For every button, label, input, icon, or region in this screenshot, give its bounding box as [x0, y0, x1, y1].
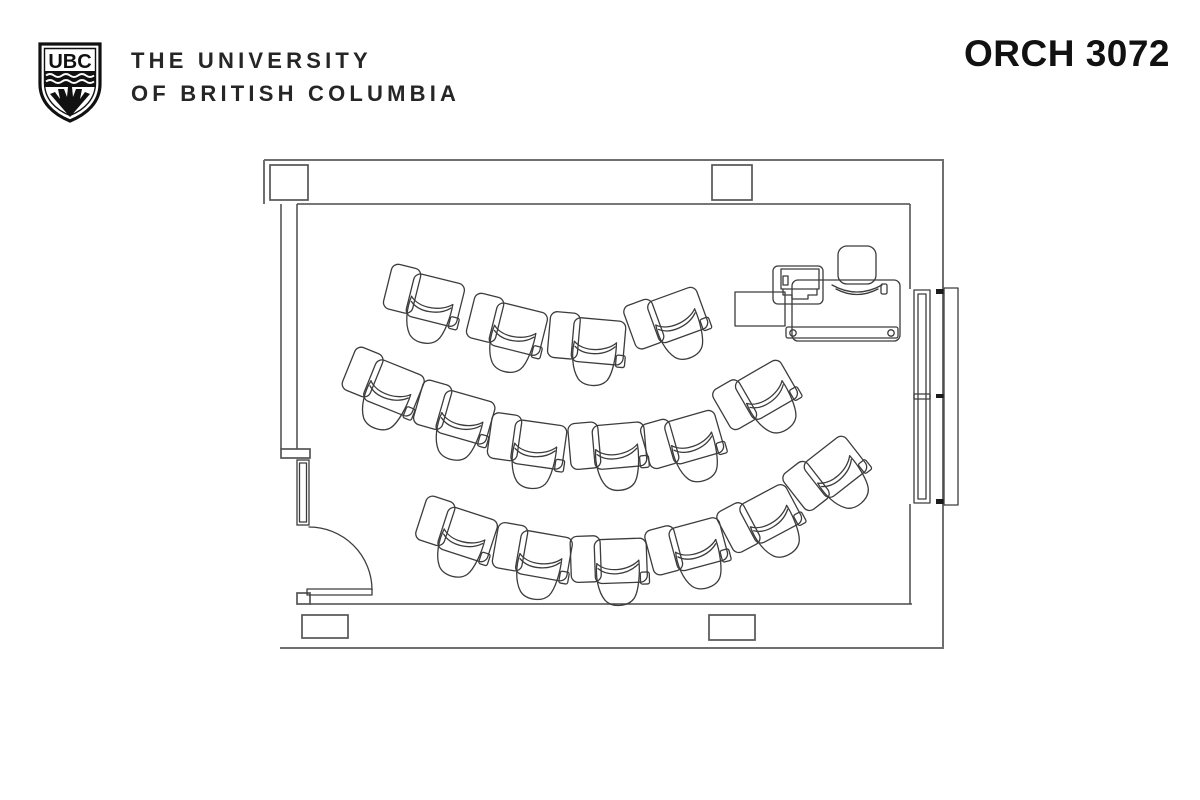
student-chair	[643, 512, 737, 600]
student-chairs-layer	[331, 263, 885, 607]
student-chair	[376, 263, 469, 350]
wall-column-bottom-center	[709, 615, 755, 640]
inner-wall-left	[281, 204, 297, 449]
board-bracket-bottom	[936, 499, 944, 504]
student-chair	[405, 379, 499, 468]
door	[297, 460, 372, 595]
student-chair	[545, 311, 629, 388]
student-chair	[567, 417, 651, 494]
console-tray	[783, 289, 817, 299]
tray-end-left	[790, 330, 796, 336]
wall-column-top-center	[712, 165, 752, 200]
wall-column-bottom-left	[302, 615, 348, 638]
tray-end-right	[888, 330, 894, 336]
student-chair	[639, 404, 733, 493]
student-chair	[487, 521, 576, 604]
console-button	[783, 276, 788, 285]
student-chair	[483, 412, 570, 493]
student-chair	[780, 429, 885, 533]
student-chair	[570, 534, 650, 607]
keyboard-tray	[786, 327, 898, 338]
wall-return	[281, 449, 310, 458]
instructor-chair	[838, 246, 876, 284]
board-track	[944, 288, 958, 505]
instructor-station	[735, 246, 900, 341]
board-bracket-top	[936, 289, 944, 294]
board-divider	[914, 394, 930, 399]
student-chair	[622, 281, 719, 374]
student-chair	[459, 292, 552, 379]
outer-wall	[264, 160, 943, 648]
board-bracket-mid	[936, 394, 944, 398]
wall-column-top-left	[270, 165, 308, 200]
door-swing-arc	[309, 527, 372, 590]
board-frame	[914, 290, 930, 503]
marker-board	[914, 288, 958, 505]
side-table	[735, 292, 785, 326]
door-leaf	[297, 460, 309, 525]
student-chair	[406, 494, 502, 585]
room-walls	[264, 160, 943, 648]
door-threshold	[307, 589, 372, 595]
board-panel	[918, 294, 926, 499]
student-chair	[331, 345, 430, 440]
student-chair	[714, 478, 816, 577]
floorplan-canvas	[0, 0, 1200, 800]
student-chair	[710, 353, 813, 453]
console-screen	[781, 269, 819, 289]
